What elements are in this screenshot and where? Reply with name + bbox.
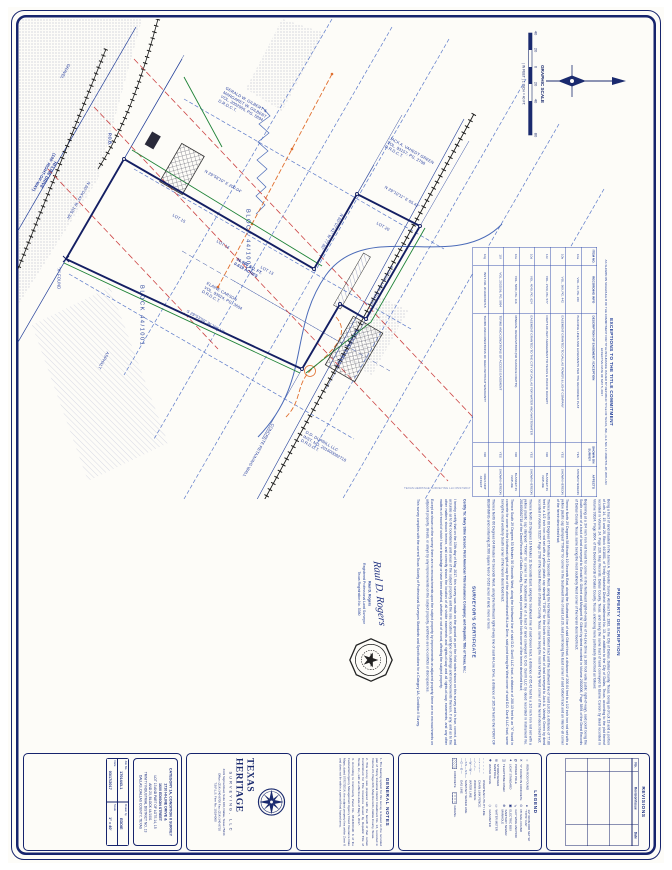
legend-symbol-icon: ▣: [508, 804, 512, 809]
legend-linetype-icon: —/—/—: [473, 758, 476, 778]
job-number-field: Job No. 1701443-1: [117, 759, 128, 803]
exceptions-header: AFFECTS: [582, 467, 597, 497]
exception-item-no: 10d: [520, 248, 535, 266]
legend-point-label: WATER VALVE: [488, 764, 491, 784]
legend-linetype-icon: —×—×—: [478, 758, 481, 778]
exception-description: TERMS AND CONDITIONS OF ACCESS EASEMENT: [489, 314, 504, 443]
legend-point-item: ◫ TELEPHONE RISER: [501, 758, 507, 801]
legend-symbol-icon: ✚: [488, 758, 492, 763]
exceptions-header: SHOWN ON SURVEY: [582, 443, 597, 467]
legend-symbol-icon: ○: [525, 758, 529, 763]
general-notes-title: GENERAL NOTES: [385, 758, 391, 846]
legend-concrete-label: CONCRETE: [453, 771, 456, 788]
exceptions-subtitle: AS SHOWN ON SCHEDULE B OF THE COMMITMENT…: [600, 251, 608, 493]
scale-value: 1" = 40': [108, 804, 113, 844]
certify-to-line: Certify To: Mary Stine Carson; First Ame…: [462, 499, 467, 745]
description-paragraph: Thence South 29 Degrees 53 Minutes 50 Se…: [500, 499, 514, 745]
legend-line-item: —SS—SS— SANITARY SEWER LINE: [464, 758, 467, 846]
legend-point-label: 1/2" IRON ROD SET W/ "TXHS" CAP: [524, 810, 530, 847]
general-notes-box: GENERAL NOTES 1. The bearing system for …: [296, 753, 394, 851]
exception-affects: BLANKET IN NATURE: [535, 467, 550, 497]
legend-line-label: CHAIN LINK FENCE: [478, 780, 481, 807]
asphalt-area: [32, 287, 168, 481]
north-arrow: [546, 65, 626, 97]
exception-item-no: 10g: [473, 248, 488, 266]
property-description-title: PROPERTY DESCRIPTION: [615, 499, 621, 745]
exception-recording: VOL. 5280, PG. 116: [504, 266, 519, 314]
legend-point-label: TELEPHONE RISER: [502, 764, 505, 792]
legend-linetype-icon: —SS—SS—: [464, 758, 467, 778]
exception-shown: YES: [489, 443, 504, 467]
certificate-paragraph: Except as shown on the survey: there are…: [425, 499, 434, 745]
exception-affects: BLANKET IN NATURE: [504, 467, 519, 497]
exception-shown: YES: [520, 443, 535, 467]
revisions-header-issue: Revision/Issue: [633, 772, 639, 825]
scale-title: GRAPHIC SCALE: [540, 65, 545, 103]
legend-point-item: ◎ STORM SEWER MANHOLE: [493, 758, 499, 801]
exception-item-no: 10f: [489, 248, 504, 266]
legend-concrete-item: CONCRETE: [452, 758, 457, 788]
legend-point-item: ● 1/2" IRON ROD SET W/ "TXHS" CAP: [524, 804, 530, 847]
exception-description: EASEMENT GRANTED TO THE CITY OF DALLAS F…: [520, 314, 535, 443]
exception-description: EASEMENT GRANTED TO DALLAS POWER & LIGHT…: [551, 314, 566, 443]
legend-point-item: ⇘ GUY WIRE ANCHOR: [513, 804, 517, 847]
legend-point-item: ◇ GAS METER: [488, 804, 492, 847]
description-paragraph: Thence North 29 Degrees 58 Minutes 10 Se…: [555, 499, 569, 745]
exception-recording: INST. NO. 201600082718: [473, 266, 488, 314]
date-field: Date 03/17/2017: [106, 759, 117, 803]
drawn-by-label: Drawn by: [124, 804, 127, 844]
legend-point-label: WATER METER: [494, 810, 497, 831]
description-paragraph: Beginning at a 3/4 inch iron rod found f…: [574, 499, 588, 745]
x-found-label: "X" FOUND: [56, 267, 61, 289]
job-number-label: Job No.: [124, 761, 127, 801]
exceptions-row: 10a VOL. 24, PG. 220 BUILDING LINES AND …: [566, 248, 582, 497]
surveyor-seal: [348, 637, 394, 683]
description-paragraph: Being a tract of land situated in the Ja…: [592, 499, 611, 745]
block-label-2: BLOCK 44/1001: [138, 285, 145, 346]
scale-caption: ( IN FEET ) 1 INCH = 40 FT.: [522, 63, 526, 105]
exception-item-no: 10b: [551, 248, 566, 266]
exception-recording: VOL. 2729, PG. 577: [535, 266, 550, 314]
exception-recording: VOL. 369, PG. 442: [551, 266, 566, 314]
description-paragraph: Thence North 29 Degrees 10 Minutes 11 Se…: [518, 499, 532, 745]
scale-tick: 20: [534, 48, 539, 53]
date-label: Date: [113, 761, 116, 801]
legend-symbol-icon: ◇: [488, 804, 492, 809]
description-and-certificate: PROPERTY DESCRIPTION Being a tract of la…: [23, 499, 622, 745]
exception-description: MINERAL RESERVATION (NO SURFACE RIGHTS): [504, 314, 519, 443]
revisions-header-date: Date: [633, 825, 639, 846]
revisions-box: REVISIONS No. Revision/Issue Date: [546, 753, 650, 851]
certificate-paragraph: I hereby certify that on the 13th day of…: [439, 499, 458, 745]
legend-point-item: ⊙ PK NAIL FOUND: [519, 804, 523, 847]
legend-point-label: "X" FOUND IN CONCRETE: [519, 764, 522, 800]
drawn-by-value: EDDIE: [119, 804, 124, 844]
legend-linetype-icon: —G—G—: [460, 758, 463, 778]
company-address: 4333 Sigma Road, Suite 100, Dallas, Texa…: [221, 769, 225, 836]
exception-affects: SHOWN HEREON: [489, 467, 504, 497]
legend-point-item: ✦ LIGHT STANDARD: [508, 758, 512, 801]
exceptions-title: EXCEPTIONS TO THE TITLE COMMITMENT: [609, 247, 615, 497]
site-address-2: 1600 EDISON STREET: [157, 761, 162, 843]
scale-tick: 40: [534, 31, 539, 36]
legend-point-item: ▭ WATER METER: [493, 804, 499, 847]
general-note: 3. According to Community Panel No. 4811…: [338, 758, 354, 846]
legend-symbol-icon: ◫: [502, 758, 506, 763]
legal-lots-1: LOT 13 AND PART OF LOTS 14, 15: [152, 761, 157, 843]
legend-line-label: OVERHEAD UTILITY LINE: [482, 780, 485, 816]
drawn-by-field: Drawn by EDDIE: [117, 802, 128, 846]
revisions-empty-row: [610, 759, 632, 846]
legend-point-item: Ø POWER POLE: [513, 758, 517, 801]
legend-symbol-icon: ▭: [494, 804, 498, 809]
exception-description: BUILDING LINES AND EASEMENTS PER THE REC…: [566, 314, 581, 443]
exception-description: TERMS AND CONDITIONS OF DEED WITHOUT WAR…: [473, 314, 488, 443]
general-note: 2. This survey was prepared with the ben…: [356, 758, 368, 846]
legend-point-label: PK NAIL FOUND: [519, 810, 522, 832]
exceptions-row: 10d VOL. 4049, PG. 624 EASEMENT GRANTED …: [520, 248, 536, 497]
exception-item-no: 10c: [535, 248, 550, 266]
legend-line-label: SANITARY SEWER LINE: [464, 780, 467, 813]
legend-line-item: —W—W— WATER LINE: [469, 758, 472, 846]
legal-lots-2: AND 20, BLOCK 44/1001: [147, 761, 152, 843]
certificate-title: SURVEYOR'S CERTIFICATE: [470, 499, 476, 745]
exception-recording: VOL. 24, PG. 220: [566, 266, 581, 314]
legend-line-label: GAS LINE: [460, 780, 463, 794]
legend-linetype-icon: —W—W—: [469, 758, 472, 778]
exception-description: RIGHT-OF-WAY AGREEMENT TO TEXAS & PACIFI…: [535, 314, 550, 443]
legend-line-item: – – – – – OVERHEAD UTILITY LINE: [482, 758, 485, 846]
legend-point-label: STORM SEWER MANHOLE: [493, 764, 499, 801]
description-paragraph: Thence North 60 Degrees 07 Minutes 41 Se…: [537, 499, 551, 745]
exceptions-header: DESCRIPTION OF EASEMENT / EXCEPTION: [582, 314, 597, 443]
exceptions-row: 10f VOL. 2002006, PG. 5894 TERMS AND CON…: [489, 248, 505, 497]
legend-point-item: ⊕ SANITARY SEWER MANHOLE: [501, 804, 507, 847]
legend-box: LEGEND ○ IRON ROD FOUND ● 1/2" IRON ROD …: [398, 753, 542, 851]
plot-stamp: TEXAS HERITAGE SURVEYING LLC 05/17/2017: [404, 487, 470, 490]
legend-line-label: WOOD FENCE: [473, 780, 476, 800]
legend-gravel-label: GRAVEL: [453, 806, 456, 818]
legend-point-item: ▣ ELECTRIC BOX: [508, 804, 512, 847]
legend-symbol-icon: ✕: [519, 758, 523, 763]
revisions-empty-row: [566, 759, 588, 846]
general-note: 1. The bearing system for this survey is…: [370, 758, 382, 846]
exception-affects: SHOWN HEREON: [566, 467, 581, 497]
company-name: TEXAS HERITAGE: [234, 758, 256, 846]
legend-point-label: LIGHT STANDARD: [509, 764, 512, 789]
exception-affects: SHOWN HEREON: [551, 467, 566, 497]
legend-symbol-icon: ⊙: [519, 804, 523, 809]
exception-affects: DOES NOT AFFECT: [473, 467, 488, 497]
scale-tick: 20: [534, 82, 539, 87]
legend-symbol-icon: Ø: [513, 758, 517, 763]
legend-symbol-icon: ◎: [494, 758, 498, 763]
exception-item-no: 10a: [566, 248, 581, 266]
compass-rose-logo-icon: [257, 788, 286, 817]
description-paragraph: Thence North 60 Degrees 04 Minutes 43 Se…: [486, 499, 495, 745]
legend-point-label: POWER POLE: [514, 764, 517, 784]
power-poles: [217, 73, 334, 377]
scale-tick: 80: [534, 133, 539, 138]
scale-tick: 0: [534, 66, 539, 69]
exceptions-row: 10b VOL. 369, PG. 442 EASEMENT GRANTED T…: [551, 248, 567, 497]
scanned-survey-page: 40 20 0 20 40 80 GRAPHIC SCALE ( IN FEET…: [0, 0, 672, 870]
legend-point-item: ✕ "X" FOUND IN CONCRETE: [519, 758, 523, 801]
legal-district: TRINITY INDUSTRIAL DISTRICT NO. 13: [142, 761, 147, 843]
exception-recording: VOL. 4049, PG. 624: [520, 266, 535, 314]
legend-point-label: ELECTRIC BOX: [509, 810, 512, 832]
concrete-swatch-icon: [452, 758, 457, 769]
survey-category: CATEGORY 1A, CONDITION II SURVEY: [168, 761, 174, 843]
revisions-title: REVISIONS: [641, 758, 647, 846]
legend-point-label: SANITARY SEWER MANHOLE: [501, 810, 507, 847]
exceptions-table: EXCEPTIONS TO THE TITLE COMMITMENT AS SH…: [473, 247, 615, 497]
legend-line-label: WATER LINE: [469, 780, 472, 798]
exception-shown: YES: [566, 443, 581, 467]
revisions-header-no: No.: [633, 759, 639, 772]
legend-point-label: GAS METER: [488, 810, 491, 827]
project-info-box: CATEGORY 1A, CONDITION II SURVEY 1710 HI…: [23, 753, 182, 851]
exception-item-no: 10e: [504, 248, 519, 266]
exception-shown: NO: [473, 443, 488, 467]
company-phone: Office: (214) 340-9700 Fax: (214) 340-97…: [217, 769, 221, 836]
exception-shown: NO: [535, 443, 550, 467]
job-number-value: 1701443-1: [119, 761, 124, 801]
legend-gravel-item: GRAVEL: [452, 793, 457, 818]
exceptions-row: 10c VOL. 2729, PG. 577 RIGHT-OF-WAY AGRE…: [535, 248, 551, 497]
scale-tick: 40: [534, 99, 539, 104]
exception-affects: SHOWN HEREON: [520, 467, 535, 497]
graphic-scale-bar: 40 20 0 20 40 80 GRAPHIC SCALE ( IN FEET…: [522, 31, 546, 138]
exceptions-header: ITEM NO.: [582, 248, 597, 266]
gravel-swatch-icon: [452, 793, 457, 804]
scale-label: Scale: [113, 804, 116, 844]
legend-line-item: —×—×— CHAIN LINK FENCE: [478, 758, 481, 846]
exception-shown: NO: [504, 443, 519, 467]
surveyor-signature: Raul D. Rogers: [370, 560, 390, 626]
surveyor-brand-box: TEXAS HERITAGE SURVEYING, LLC 4333 Sigma…: [186, 753, 292, 851]
company-subname: SURVEYING, LLC: [229, 771, 234, 832]
exceptions-row: 10g INST. NO. 201600082718 TERMS AND CON…: [473, 248, 489, 497]
legend-point-item: ✚ WATER VALVE: [488, 758, 492, 801]
revisions-header-row: No. Revision/Issue Date: [632, 759, 638, 846]
legend-title: LEGEND: [533, 758, 539, 846]
surveyor-title: Registered Professional Land Surveyor: [361, 561, 366, 626]
pob-label: P.O.B.: [107, 133, 112, 145]
exceptions-row: 10e VOL. 5280, PG. 116 MINERAL RESERVATI…: [504, 248, 520, 497]
exception-recording: VOL. 2002006, PG. 5894: [489, 266, 504, 314]
survey-sheet: 40 20 0 20 40 80 GRAPHIC SCALE ( IN FEET…: [8, 7, 664, 863]
legend-linetype-icon: – – – – –: [482, 758, 485, 778]
signature-block: Raul D. Rogers Raul D. Rogers Registered…: [348, 499, 394, 745]
legend-point-label: GUY WIRE ANCHOR: [514, 810, 517, 838]
legend-symbol-icon: ⊕: [502, 804, 506, 809]
exceptions-header-row: ITEM NO. RECORDING INFO DESCRIPTION OF E…: [582, 248, 597, 497]
date-value: 03/17/2017: [108, 761, 113, 801]
legend-line-item: —G—G— GAS LINE: [460, 758, 463, 846]
legend-symbol-icon: ✦: [508, 758, 512, 763]
legend-point-item: ○ IRON ROD FOUND: [524, 758, 530, 801]
legend-symbol-icon: ●: [525, 804, 529, 809]
certificate-paragraph: This survey complies with the current Te…: [416, 499, 421, 745]
scale-field: Scale 1" = 40': [106, 802, 117, 846]
legend-line-item: —/—/— WOOD FENCE: [473, 758, 476, 846]
revisions-empty-row: [588, 759, 610, 846]
legend-symbol-icon: ⇘: [513, 804, 517, 809]
exception-shown: YES: [551, 443, 566, 467]
legend-point-label: IRON ROD FOUND: [525, 764, 528, 790]
exceptions-header: RECORDING INFO: [582, 266, 597, 314]
